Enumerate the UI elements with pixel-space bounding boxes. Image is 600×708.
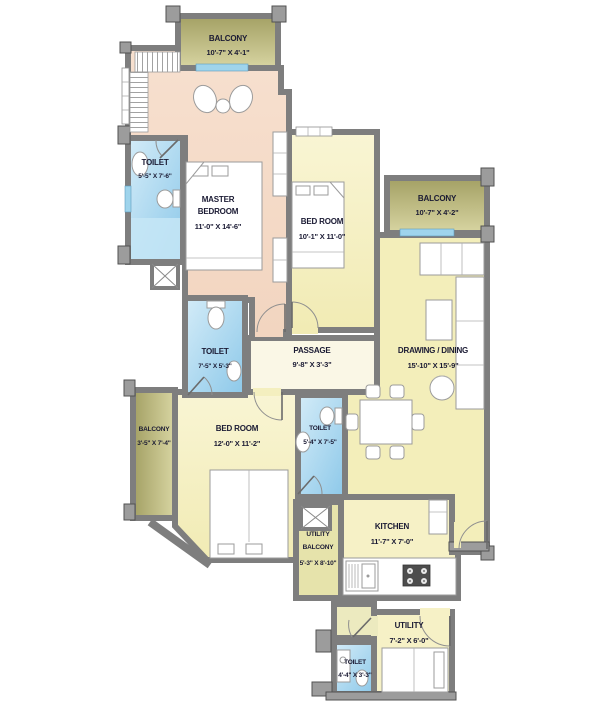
room-dims: 12'-0" X 11'-2" xyxy=(214,439,261,448)
master-bed xyxy=(186,162,262,270)
room-label: BALCONY xyxy=(303,544,335,551)
room-dims: 7'-5" X 5'-3" xyxy=(198,363,232,370)
room-label: BALCONY xyxy=(209,34,248,43)
room-label: BALCONY xyxy=(139,426,171,433)
room-balcony-left xyxy=(133,390,175,518)
room-dims: 11'-0" X 14'-6" xyxy=(195,222,242,231)
balcony-top-slider-window xyxy=(196,64,248,71)
room-label: BEDROOM xyxy=(198,207,239,216)
bedroom3-bed xyxy=(210,470,288,558)
room-dims: 10'-7" X 4'-2" xyxy=(416,208,460,217)
master-outer-window xyxy=(122,68,129,124)
room-label: UTILITY xyxy=(306,531,330,538)
room-label: BED ROOM xyxy=(216,424,259,433)
room-label: KITCHEN xyxy=(375,522,410,531)
room-dims: 3'-5" X 7'-4" xyxy=(137,440,171,447)
bedroom2-window xyxy=(296,127,332,136)
room-dims: 4'-4" X 3'-3" xyxy=(338,672,372,679)
utility-bed xyxy=(382,648,448,692)
shower-area xyxy=(131,218,180,259)
floor-plan-page: BALCONY 10'-7" X 4'-1" MASTER BEDROOM 11… xyxy=(0,0,600,708)
room-dims: 10'-1" X 11'-0" xyxy=(299,232,346,241)
room-label: BED ROOM xyxy=(301,217,344,226)
room-dims: 5'-3" X 8'-10" xyxy=(300,560,337,567)
kitchen-stove xyxy=(403,565,430,586)
room-dims: 11'-7" X 7'-0" xyxy=(371,537,414,546)
kitchen-fridge xyxy=(429,500,447,534)
duct-shaft-left xyxy=(152,264,178,288)
room-dims: 10'-7" X 4'-1" xyxy=(207,48,251,57)
room-dims: 5'-4" X 7'-5" xyxy=(303,439,337,446)
room-dims: 5'-5" X 7'-6" xyxy=(138,173,172,180)
kitchen-sink xyxy=(346,561,378,591)
toilet-window xyxy=(125,186,131,212)
room-label: TOILET xyxy=(344,659,366,666)
lounge-chair xyxy=(430,376,454,400)
room-dims: 7'-2" X 6'-0" xyxy=(390,636,430,645)
room-label: DRAWING / DINING xyxy=(398,346,468,355)
room-balcony-right xyxy=(387,178,487,233)
room-label: BALCONY xyxy=(418,194,457,203)
room-label: TOILET xyxy=(141,158,168,167)
room-dims: 15'-10" X 15'-9" xyxy=(408,361,459,370)
room-label: PASSAGE xyxy=(293,346,331,355)
balcony-right-slider-window xyxy=(400,229,454,236)
duct-shaft-utility xyxy=(301,506,330,529)
room-label: TOILET xyxy=(201,347,228,356)
room-dims: 9'-8" X 3'-3" xyxy=(293,360,333,369)
floor-plan-svg: BALCONY 10'-7" X 4'-1" MASTER BEDROOM 11… xyxy=(0,0,600,708)
room-label: TOILET xyxy=(309,425,331,432)
room-label: MASTER xyxy=(202,195,235,204)
room-label: UTILITY xyxy=(395,621,425,630)
coffee-table xyxy=(426,300,452,340)
